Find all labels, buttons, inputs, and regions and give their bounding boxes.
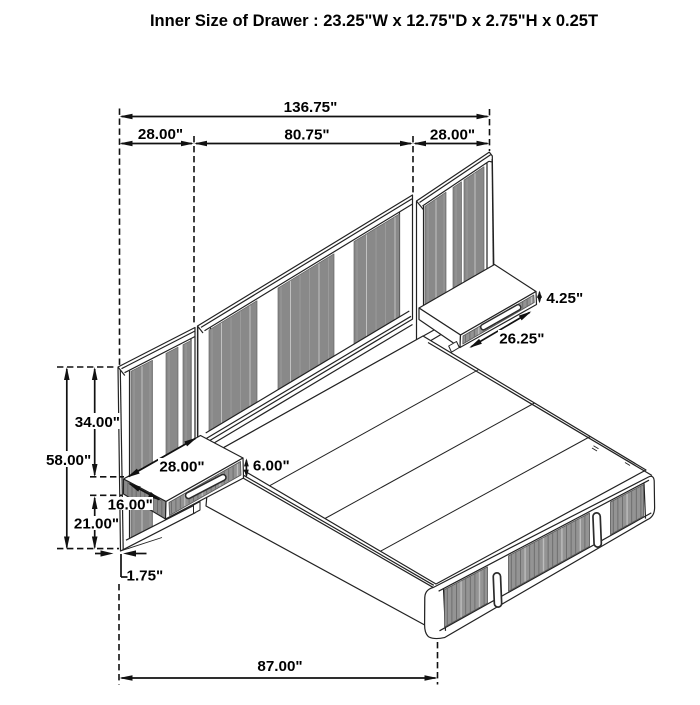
svg-text:34.00": 34.00" [75, 414, 120, 431]
svg-text:6.00": 6.00" [253, 458, 290, 475]
svg-text:58.00": 58.00" [46, 452, 91, 469]
svg-text:16.00": 16.00" [108, 497, 153, 514]
svg-text:28.00": 28.00" [159, 459, 204, 476]
svg-text:4.25": 4.25" [546, 290, 583, 307]
svg-text:136.75": 136.75" [284, 99, 338, 116]
svg-text:21.00": 21.00" [74, 516, 119, 533]
svg-text:80.75": 80.75" [284, 127, 329, 144]
svg-text:28.00": 28.00" [430, 127, 475, 144]
svg-text:Inner Size of Drawer : 23.25"W: Inner Size of Drawer : 23.25"W x 12.75"D… [150, 12, 598, 30]
svg-text:1.75": 1.75" [127, 568, 164, 585]
svg-text:28.00": 28.00" [138, 126, 183, 143]
svg-text:26.25": 26.25" [499, 331, 544, 348]
svg-text:87.00": 87.00" [257, 658, 302, 675]
